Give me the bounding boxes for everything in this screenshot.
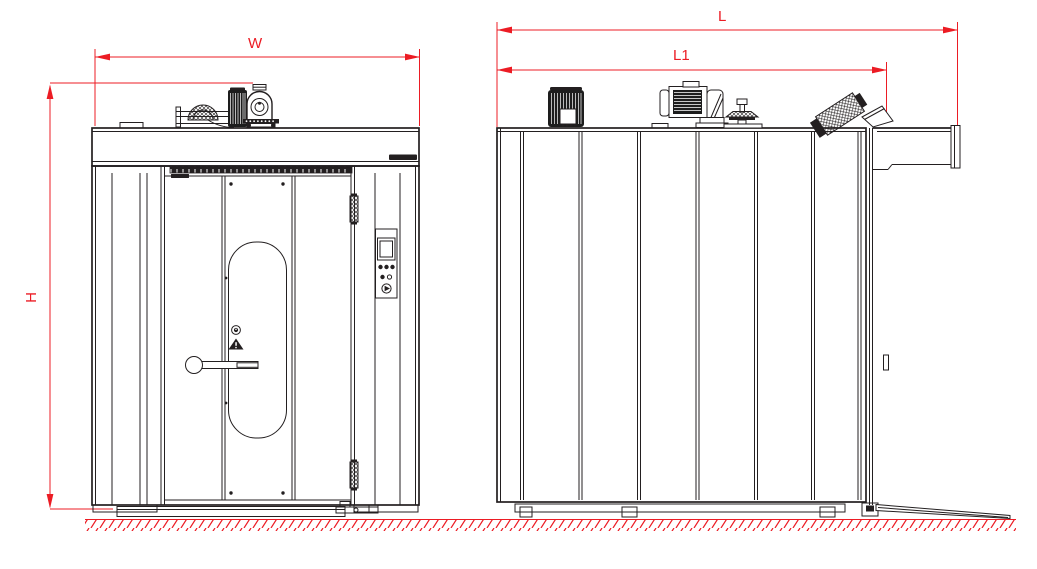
- panel-button[interactable]: [384, 265, 388, 269]
- dim-label-h: H: [24, 292, 39, 303]
- oven-door: [186, 176, 359, 500]
- side-view: [497, 82, 1010, 519]
- panel-button[interactable]: [380, 275, 384, 279]
- oven-elevation-drawing: [0, 0, 1037, 569]
- tilted-burner-motor: [809, 90, 893, 140]
- steam-dome: [188, 105, 218, 120]
- panel-button[interactable]: [378, 265, 382, 269]
- front-base: [93, 502, 418, 517]
- roof-machinery-side: [548, 82, 893, 140]
- front-view: [92, 85, 419, 517]
- door-window: [229, 242, 287, 438]
- dimension-lines: [47, 22, 958, 509]
- caution-triangle-icon: [229, 339, 244, 350]
- steam-valve: [724, 99, 762, 128]
- ground-hatch: [85, 520, 1016, 532]
- hot-surface-icon: [232, 326, 241, 335]
- drive-motor: [660, 82, 728, 128]
- door-hinge-top: [350, 194, 358, 225]
- brand-label: [389, 155, 417, 161]
- dim-label-l1: L1: [673, 48, 690, 63]
- dim-label-w: W: [248, 36, 262, 51]
- control-panel: [376, 229, 398, 298]
- side-panel-seams: [521, 131, 862, 500]
- panel-button[interactable]: [390, 265, 394, 269]
- hood-fan-motor: [548, 87, 584, 127]
- roof-machinery-front: [176, 85, 279, 128]
- side-base: [515, 503, 878, 517]
- exhaust-hood: [873, 126, 961, 170]
- loading-ramp: [876, 505, 1010, 519]
- burner-unit: [243, 85, 279, 128]
- door-latch: [884, 355, 889, 370]
- vent-grille: [170, 167, 352, 174]
- door-hinge-bottom: [350, 460, 358, 491]
- technical-drawing-page: W H L L1: [0, 0, 1037, 569]
- dim-label-l: L: [718, 9, 726, 24]
